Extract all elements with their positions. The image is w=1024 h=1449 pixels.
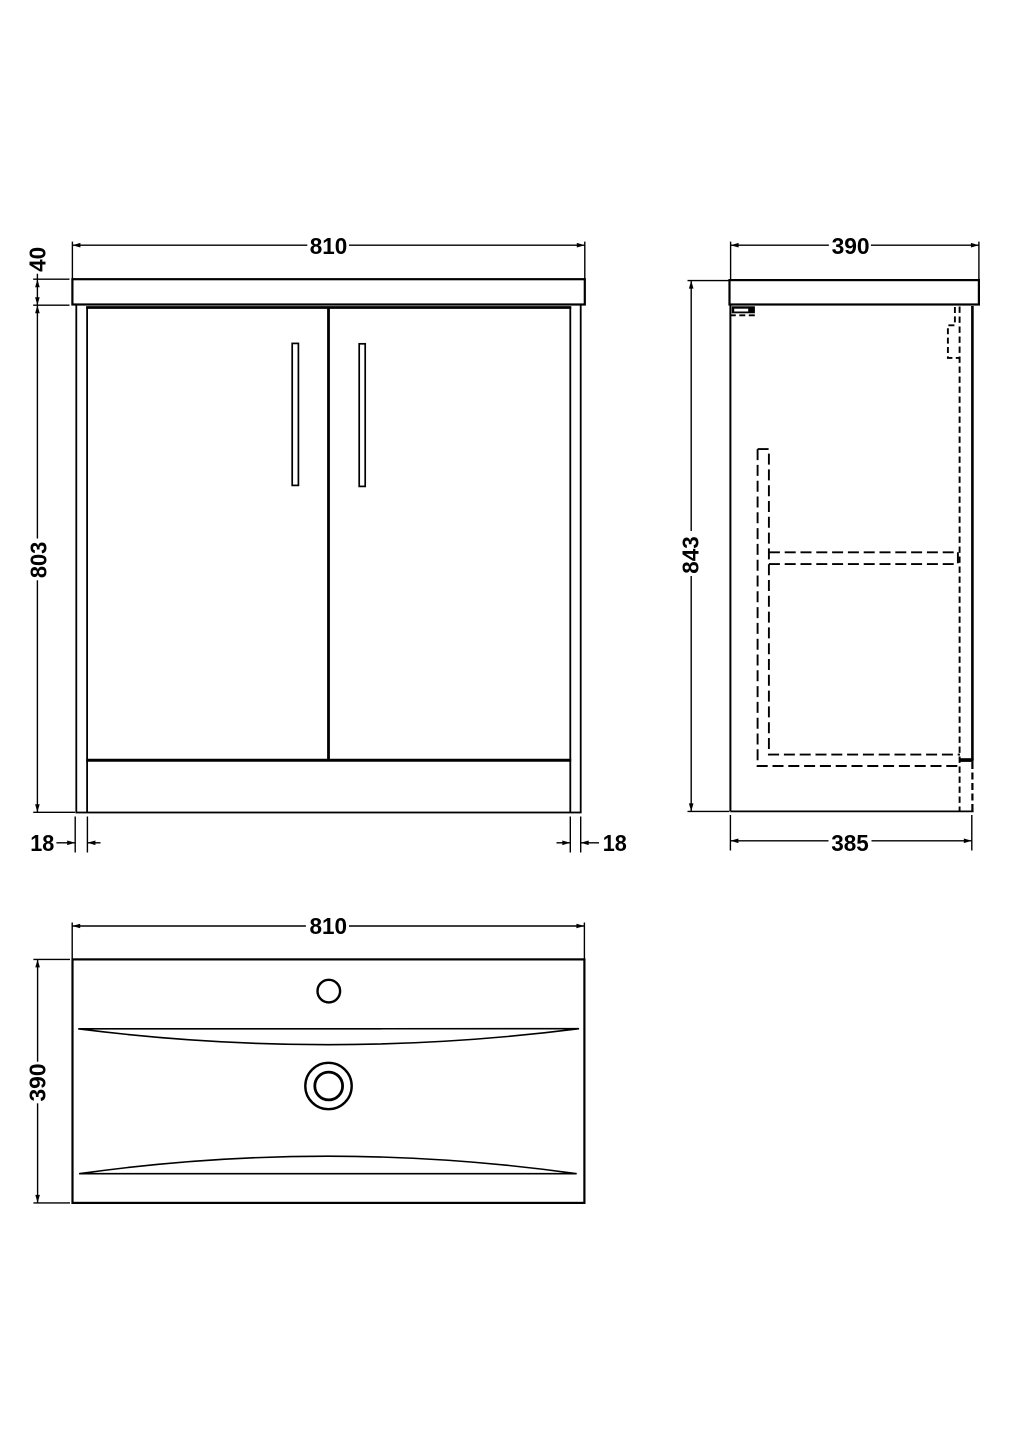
svg-text:18: 18 bbox=[603, 830, 627, 856]
svg-text:18: 18 bbox=[30, 830, 54, 856]
svg-text:385: 385 bbox=[831, 830, 869, 856]
svg-text:810: 810 bbox=[310, 233, 348, 259]
svg-text:843: 843 bbox=[677, 536, 703, 574]
svg-text:40: 40 bbox=[25, 247, 51, 272]
svg-text:810: 810 bbox=[310, 913, 348, 939]
svg-text:390: 390 bbox=[832, 233, 870, 259]
svg-text:390: 390 bbox=[24, 1064, 50, 1102]
svg-text:803: 803 bbox=[26, 542, 52, 579]
